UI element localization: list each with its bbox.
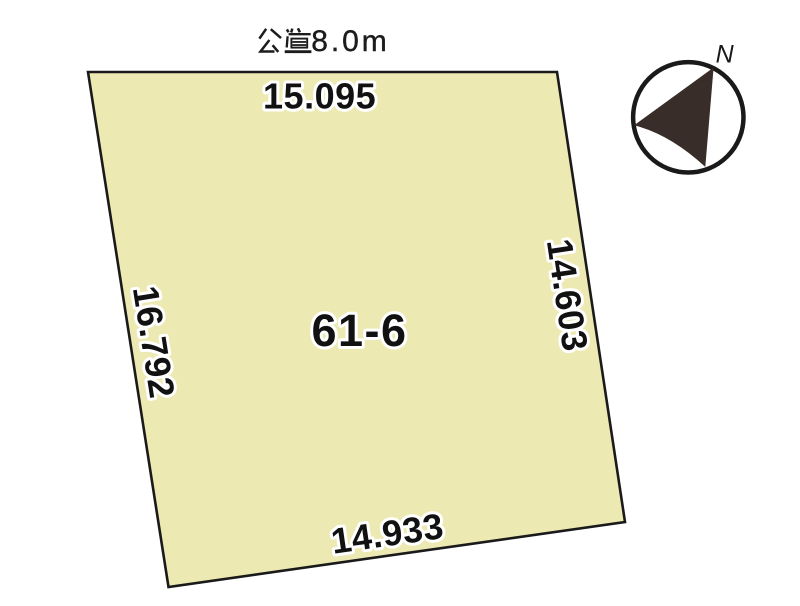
svg-text:61-6: 61-6	[311, 305, 407, 356]
svg-text:N: N	[716, 40, 735, 68]
svg-text:8.0m: 8.0m	[311, 25, 389, 58]
svg-text:15.095: 15.095	[263, 76, 376, 117]
